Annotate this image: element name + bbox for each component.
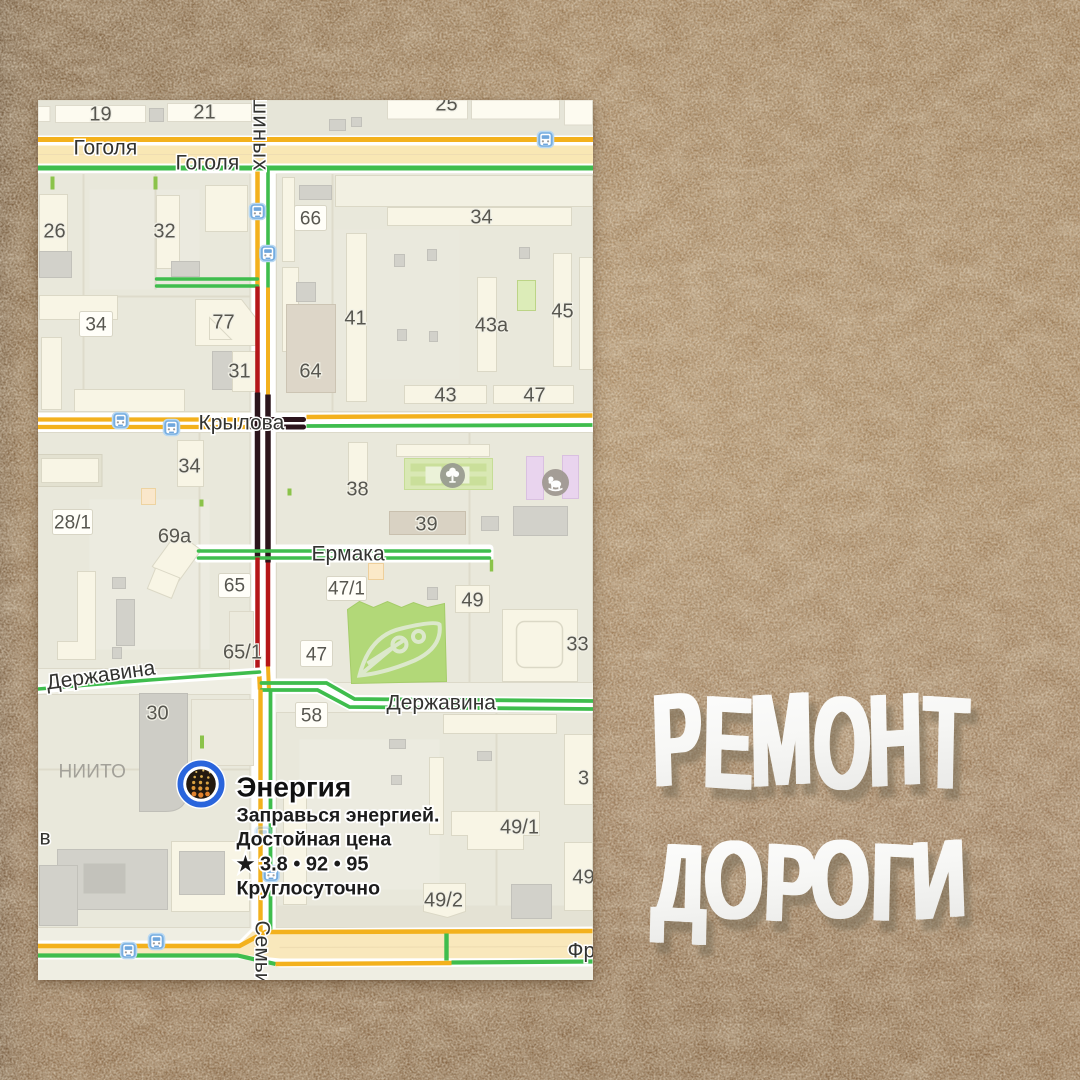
svg-text:49/2: 49/2: [424, 890, 463, 912]
svg-text:31: 31: [228, 361, 250, 383]
svg-text:28/1: 28/1: [54, 513, 91, 534]
svg-text:Державина: Державина: [387, 692, 497, 715]
svg-text:45: 45: [551, 301, 573, 323]
svg-text:38: 38: [346, 479, 368, 501]
svg-text:34: 34: [85, 315, 107, 336]
svg-text:43а: 43а: [475, 315, 509, 337]
svg-text:НИИТО: НИИТО: [59, 762, 127, 783]
svg-text:Гоголя: Гоголя: [74, 137, 138, 160]
svg-text:Ермака: Ермака: [312, 543, 385, 566]
svg-text:★ 3.8 • 92 • 95: ★ 3.8 • 92 • 95: [237, 854, 369, 876]
svg-text:47/1: 47/1: [328, 579, 365, 600]
svg-text:47: 47: [523, 385, 545, 407]
svg-text:33: 33: [566, 634, 588, 656]
svg-text:30: 30: [146, 703, 168, 725]
svg-text:58: 58: [301, 706, 322, 727]
svg-text:Семьи: Семьи: [251, 921, 274, 981]
svg-text:в: в: [40, 827, 51, 850]
svg-text:64: 64: [299, 361, 321, 383]
svg-text:21: 21: [193, 102, 215, 124]
svg-text:77: 77: [212, 312, 234, 334]
svg-text:Крылова: Крылова: [199, 412, 285, 435]
svg-text:32: 32: [153, 221, 175, 243]
svg-text:Достойная цена: Достойная цена: [237, 829, 392, 851]
svg-text:26: 26: [43, 221, 65, 243]
svg-text:66: 66: [300, 209, 321, 230]
svg-text:47: 47: [306, 645, 327, 666]
svg-text:Круглосуточно: Круглосуточно: [237, 878, 381, 900]
svg-text:Гоголя: Гоголя: [176, 152, 240, 175]
svg-text:49: 49: [572, 867, 593, 889]
svg-text:49: 49: [461, 590, 483, 612]
svg-text:43: 43: [434, 385, 456, 407]
svg-text:34: 34: [470, 207, 492, 229]
svg-text:3: 3: [578, 768, 589, 790]
svg-text:шиных: шиных: [249, 100, 274, 171]
svg-text:41: 41: [344, 308, 366, 330]
svg-text:34: 34: [178, 456, 200, 478]
svg-text:19: 19: [89, 104, 111, 126]
svg-text:25: 25: [435, 100, 457, 116]
svg-text:Фр: Фр: [568, 940, 594, 963]
svg-text:65/1: 65/1: [223, 642, 262, 664]
svg-text:Энергия: Энергия: [237, 772, 352, 803]
svg-text:49/1: 49/1: [500, 817, 539, 839]
svg-text:65: 65: [224, 576, 245, 597]
svg-text:39: 39: [415, 514, 437, 536]
svg-text:Заправься энергией.: Заправься энергией.: [237, 805, 440, 827]
svg-text:69а: 69а: [158, 526, 192, 548]
